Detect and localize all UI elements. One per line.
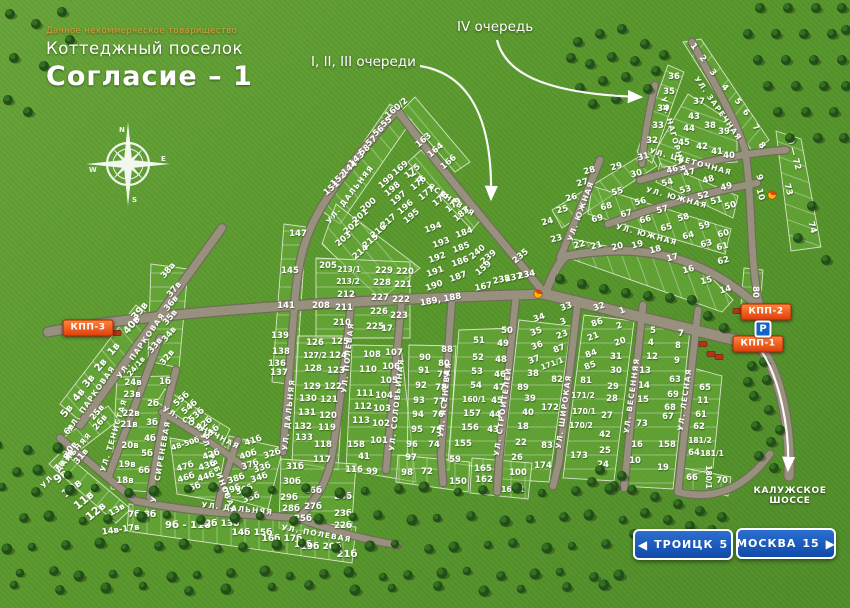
compass-w: W bbox=[89, 166, 97, 174]
compass-e: E bbox=[161, 155, 166, 163]
highway-label: КАЛУЖСКОЕ ШОССЕ bbox=[735, 486, 845, 506]
parking-sign-icon: P bbox=[755, 321, 772, 338]
checkpoint-1-badge: КПП-1 bbox=[733, 336, 784, 353]
compass-s: S bbox=[132, 196, 137, 204]
org-subtitle: Дачное некоммерческое товарищество bbox=[46, 26, 253, 37]
moscow-distance: 15 bbox=[802, 537, 819, 550]
troitsk-label: ТРОИЦК bbox=[654, 538, 713, 551]
title-block: Дачное некоммерческое товарищество Котте… bbox=[46, 26, 253, 94]
left-arrow-icon: ◀ bbox=[638, 539, 648, 551]
right-arrow-icon: ▶ bbox=[826, 538, 836, 550]
checkpoint-2-badge: КПП-2 bbox=[741, 304, 792, 321]
phase-4-annotation: IV очередь bbox=[457, 19, 533, 35]
settlement-type: Коттеджный поселок bbox=[46, 39, 253, 60]
troitsk-distance: 5 bbox=[719, 538, 728, 551]
checkpoint-3-badge: КПП-3 bbox=[63, 320, 114, 337]
compass-rose-icon: N E S W bbox=[86, 122, 170, 206]
phases-1-3-annotation: I, II, III очереди bbox=[311, 54, 416, 70]
map-canvas: УЛ. ДАЛЬНЯЯУЛ. ЯСЕНЕВАЯУЛ. ДАЛЬНЯЯУЛ. ПО… bbox=[0, 0, 850, 608]
road-sign-troitsk: ◀ ТРОИЦК 5 bbox=[633, 529, 733, 560]
road-sign-moscow: МОСКВА 15 ▶ bbox=[736, 528, 836, 559]
settlement-name: Согласие – 1 bbox=[46, 60, 253, 94]
moscow-label: МОСКВА bbox=[736, 537, 796, 550]
compass-n: N bbox=[119, 126, 125, 134]
